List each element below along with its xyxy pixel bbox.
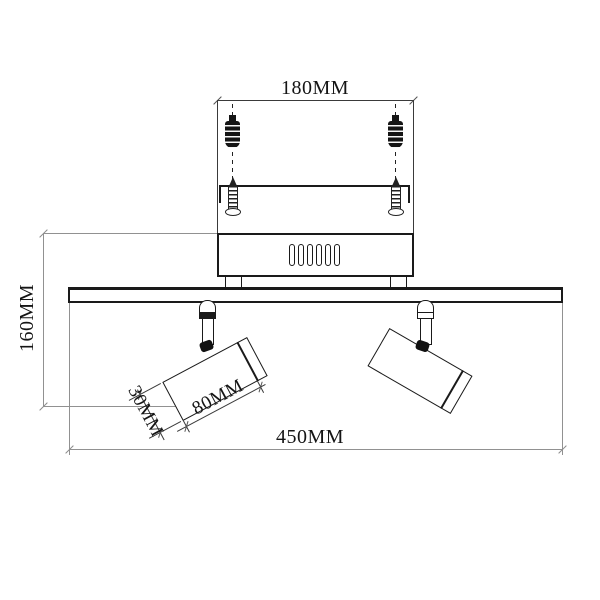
vent-slot [298, 244, 304, 266]
screw-left-shaft [228, 186, 238, 209]
technical-drawing-canvas: 180MM 160MM 450MM [0, 0, 600, 600]
dim-180mm-line [217, 100, 414, 101]
wall-anchor-right [388, 121, 403, 148]
wall-anchor-left [225, 121, 240, 148]
dim-450mm-ext-left [69, 303, 70, 455]
mounting-bracket-end-right [408, 185, 410, 203]
dim-180mm-ext-right [413, 100, 414, 233]
dim-160mm-label: 160MM [16, 258, 36, 378]
vent-slot [307, 244, 313, 266]
dim-160mm-ext-bottom [43, 406, 180, 407]
spotlight-head-left-group: 30MM 80MM [162, 337, 267, 421]
dim-160mm-ext-top [43, 233, 217, 234]
vent-slot [316, 244, 322, 266]
vent-slot [325, 244, 331, 266]
dim-180mm-label: 180MM [217, 77, 413, 100]
dim-450mm-line [69, 449, 563, 450]
vent-slot [289, 244, 295, 266]
screw-left-tip [229, 177, 237, 186]
mounting-bracket-end-left [219, 185, 221, 203]
screw-right-head [388, 208, 404, 216]
dim-450mm-ext-right [562, 303, 563, 455]
screw-right-tip [392, 177, 400, 186]
vent-slot [334, 244, 340, 266]
dim-450mm-label: 450MM [250, 426, 370, 449]
mounting-bracket-bar [219, 185, 410, 187]
dim-180mm-ext-left [217, 100, 218, 233]
ceiling-bar [68, 287, 563, 303]
screw-left-head [225, 208, 241, 216]
screw-right-shaft [391, 186, 401, 209]
dim-160mm-line [43, 233, 44, 406]
